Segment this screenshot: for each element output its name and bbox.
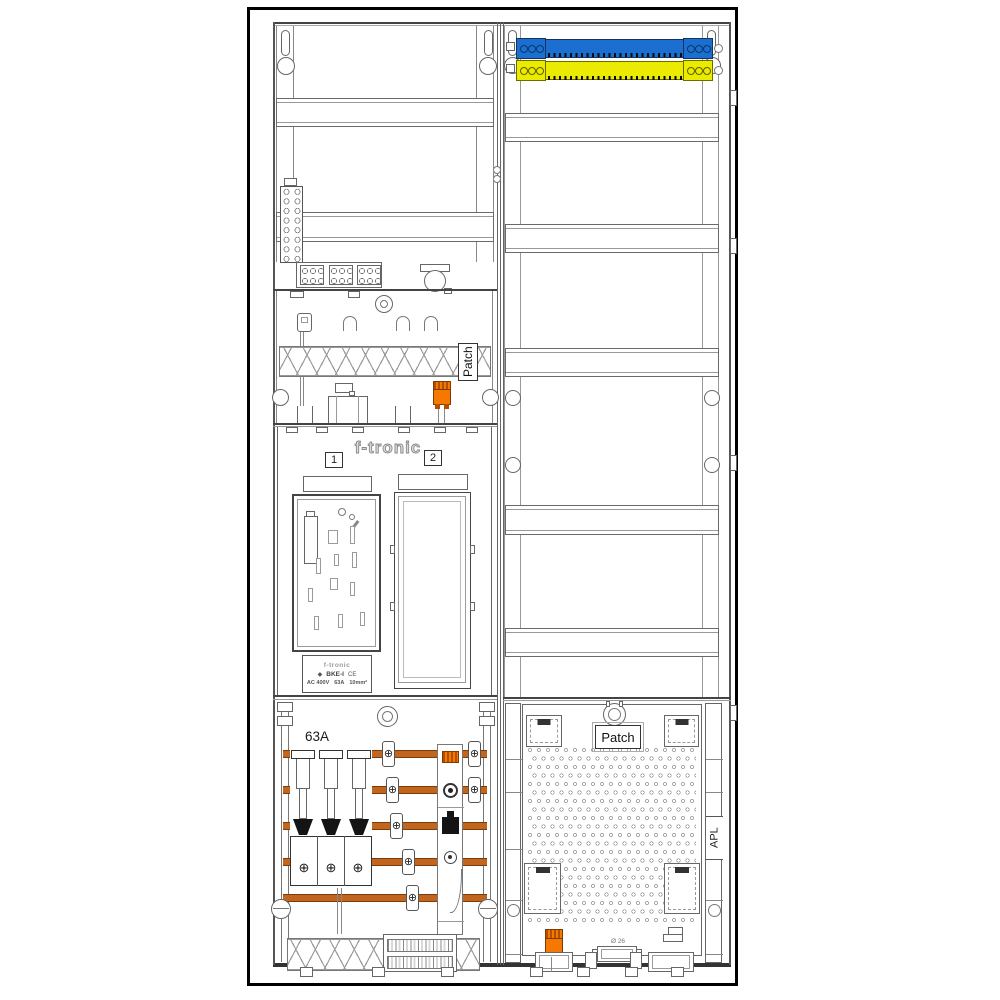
busbar-clamp-icon: ⊕ (386, 777, 399, 803)
mount-slot (330, 578, 338, 590)
profile-hole (505, 390, 521, 406)
fuse-switch-block: ⊕ ⊕ ⊕ (290, 748, 372, 888)
section-divider (503, 697, 731, 699)
pe-rail-end (516, 60, 546, 81)
pe-rail-end (683, 60, 713, 81)
busbar-clamp-icon: ⊕ (382, 741, 395, 767)
rail-segment-line (506, 792, 522, 793)
pe-terminal-rail (516, 61, 711, 80)
patch-label-right-text: Patch (601, 730, 634, 745)
fuse-contact-pad (293, 819, 313, 835)
column-divider-line-1 (497, 22, 498, 965)
screw-detail (349, 514, 355, 520)
mount-slot (350, 526, 355, 544)
field-side-tab (470, 602, 475, 611)
mount-slot (328, 530, 338, 544)
profile-hole (704, 390, 720, 406)
top-clamp-notch (606, 701, 610, 707)
connector-foot-bracket-inner (539, 955, 569, 969)
cabinet-top-edge-inner (273, 25, 731, 26)
profile-slot (281, 30, 290, 56)
screw-terminal-icon: ⊕ (324, 860, 338, 874)
section-divider (273, 423, 497, 425)
rail-segment-line (706, 792, 723, 793)
cabinet-foot (625, 967, 638, 977)
terminal-hole (536, 67, 544, 75)
junction-box-line (336, 396, 337, 425)
busbar-clamp-icon: ⊕ (468, 741, 481, 767)
side-hole (272, 389, 289, 406)
rail-pivot (507, 904, 520, 917)
connector-wire (551, 957, 552, 972)
sls-wire-arc (450, 869, 462, 913)
cutout-tab (675, 867, 689, 873)
top-grommet-inner (382, 711, 393, 722)
neutral-terminal-rail (516, 39, 711, 58)
apl-label-text: APL (706, 817, 723, 859)
profile-hole (505, 457, 521, 473)
corner-pivot (271, 899, 291, 919)
neutral-rail-ticks (548, 53, 682, 57)
divider-connector-dot (493, 166, 501, 174)
neutral-rail-end (683, 38, 713, 59)
fuse-cap (319, 750, 343, 759)
cabinet-foot (372, 967, 385, 977)
sls-device (437, 744, 463, 935)
name-plate-blank (303, 476, 372, 492)
section-divider (273, 289, 497, 291)
right-wall-hinge (730, 705, 737, 721)
terminal-hole (520, 45, 528, 53)
drawing-canvas: Patch f-tronic 1 2 (0, 0, 1000, 1000)
cabinet-top-edge (273, 22, 731, 24)
fuse-stem (296, 759, 310, 789)
rail-segment-line (706, 954, 723, 955)
terminal-hole (687, 45, 695, 53)
type-plate-current: 63A (334, 680, 344, 686)
sls-ring-screw-dot (448, 788, 453, 793)
sls-divider (438, 807, 464, 808)
top-tab (316, 427, 328, 433)
brand-logo: f-tronic (288, 438, 488, 456)
cutout-tab (675, 719, 688, 725)
rail-end-bracket (506, 64, 515, 73)
lock-element-inner (301, 317, 308, 323)
plate-cutout-square (664, 715, 699, 747)
fuse-stem-lower (327, 789, 335, 819)
knockout-bracket-inner (601, 949, 633, 959)
cabinet-foot (300, 967, 313, 977)
sls-orange-cap (442, 751, 459, 763)
top-tab (348, 291, 360, 298)
cabinet-foot (577, 967, 590, 977)
right-wall-hinge (730, 238, 737, 254)
rail-segment-line (706, 759, 723, 760)
door-knob-center (380, 300, 388, 308)
top-clamp-inner (608, 708, 621, 721)
fuse-base-divider (317, 836, 318, 886)
door-catch-hook (396, 316, 410, 331)
section-divider-inner (273, 426, 497, 427)
corner-pivot-line (273, 908, 289, 909)
knockout-diameter-label: Ø 26 (598, 937, 638, 946)
fuse-cap (291, 750, 315, 759)
name-plate-blank (398, 474, 468, 490)
section-divider-inner (503, 700, 731, 701)
fuse-contact-pad (321, 819, 341, 835)
meter-field-2-number: 2 (424, 450, 442, 466)
junction-box (328, 396, 368, 425)
screw-detail (338, 508, 346, 516)
busbar-support (281, 702, 282, 962)
cabinet-foot (671, 967, 684, 977)
screw-terminal-icon: ⊕ (351, 860, 365, 874)
neutral-rail-end (516, 38, 546, 59)
orange-connector-body (433, 389, 451, 405)
vertical-terminal-block (280, 186, 303, 263)
meter-mount-component (304, 516, 318, 564)
terminal-hole (703, 67, 711, 75)
fuse-stem-lower (299, 789, 307, 819)
mount-slot (314, 616, 319, 630)
pe-rail-ticks (548, 76, 682, 80)
din-rail (505, 505, 719, 535)
patch-label-left: Patch (458, 343, 478, 381)
busbar-support (483, 702, 484, 962)
cabinet-foot (530, 967, 543, 977)
sls-divider (438, 921, 464, 922)
terminal-hole (528, 45, 536, 53)
plate-cutout-rect (664, 863, 700, 914)
terminal-hole (703, 45, 711, 53)
profile-hole (277, 57, 295, 75)
block-wire (337, 888, 338, 934)
door-catch-hook (343, 316, 357, 331)
side-hole (482, 389, 499, 406)
field-2-number-text: 2 (430, 452, 436, 464)
din-rail (505, 628, 719, 657)
fuse-cap (347, 750, 371, 759)
support-notch (479, 716, 495, 726)
cabinet-foot (441, 967, 454, 977)
type-plate-voltage: AC 400V (307, 680, 329, 686)
meter-field-2 (394, 492, 471, 689)
type-plate-logo-icon: ◆ (318, 671, 323, 678)
step-bracket (663, 934, 683, 942)
busbar-rating-label: 63A (305, 729, 349, 745)
top-tab (290, 291, 304, 298)
cutout-tab (538, 719, 551, 725)
top-tab (434, 427, 446, 433)
door-catch-hook (424, 316, 438, 331)
corner-pivot-line (480, 908, 496, 909)
mount-slot (338, 614, 343, 628)
top-tab (398, 427, 410, 433)
right-wall-hinge (730, 90, 737, 106)
meter-field-1-number: 1 (325, 452, 343, 468)
sls-black-flag (442, 817, 459, 834)
section-wall (277, 427, 278, 697)
rail-segment-line (506, 759, 522, 760)
field-1-number-text: 1 (331, 454, 337, 466)
terminal-block-cap (284, 178, 297, 186)
fuse-base-divider (344, 836, 345, 886)
mount-slot (334, 554, 339, 566)
junction-box-line (358, 396, 359, 425)
type-plate-type: BKE-I (326, 671, 344, 678)
type-plate-brand: f-tronic (324, 662, 350, 669)
block-wire (341, 888, 342, 934)
apl-right-rail: APL (705, 703, 722, 963)
field-side-tab (390, 602, 395, 611)
rail-segment-line (506, 849, 522, 850)
meter-field-2-inner2 (403, 501, 461, 678)
busbar-clamp-icon: ⊕ (390, 813, 403, 839)
terminal-hole (536, 45, 544, 53)
terminal-group (329, 265, 353, 285)
fuse-contact-pad (349, 819, 369, 835)
terminal-hole (687, 67, 695, 75)
rail-pivot (708, 904, 721, 917)
top-tab (466, 427, 478, 433)
din-rail (276, 212, 494, 242)
rail-segment-line (706, 900, 723, 901)
profile-slot (484, 30, 493, 56)
knockout-diameter-text: Ø 26 (611, 938, 625, 945)
fuse-stem (324, 759, 338, 789)
busbar-clamp-icon: ⊕ (402, 849, 415, 875)
plate-cutout-rect (524, 863, 561, 914)
rail-segment-line (506, 900, 522, 901)
plate-cutout-square (526, 715, 562, 747)
support-notch (277, 716, 293, 726)
cabinet-left-wall (273, 22, 275, 965)
section-wall (491, 427, 492, 697)
terminal-group (357, 265, 381, 285)
terminal-row (387, 939, 453, 952)
patch-label-right: Patch (595, 725, 641, 749)
mount-slot (316, 558, 321, 574)
busbar-support (288, 702, 289, 962)
din-rail (276, 98, 494, 127)
corner-pivot (478, 899, 498, 919)
fuse-stem (352, 759, 366, 789)
field-side-tab (390, 545, 395, 554)
terminal-group (300, 265, 324, 285)
mount-slot (350, 582, 355, 596)
type-plate-cross-section: 10mm² (349, 680, 367, 686)
din-rail (505, 113, 719, 142)
fuse-stem-lower (355, 789, 363, 819)
support-notch (277, 702, 293, 712)
top-tab (352, 427, 364, 433)
din-rail (505, 224, 719, 253)
terminal-hole (520, 67, 528, 75)
profile-hole (479, 57, 497, 75)
section-divider-inner (273, 699, 497, 700)
rail-end-hole (714, 66, 723, 75)
busbar-clamp-icon: ⊕ (468, 777, 481, 803)
right-wall-hinge (730, 455, 737, 471)
screw-terminal-icon: ⊕ (297, 860, 311, 874)
support-notch (479, 702, 495, 712)
divider-connector-dot (493, 175, 501, 183)
mount-slot (360, 612, 365, 626)
profile-hole (704, 457, 720, 473)
sls-screw-dot (448, 855, 452, 859)
meter-type-plate: f-tronic ◆ BKE-I CE AC 400V 63A 10mm² (302, 655, 372, 693)
terminal-hole (695, 45, 703, 53)
terminal-hole (528, 67, 536, 75)
rail-end-hole (714, 44, 723, 53)
column-divider-line-2 (500, 22, 501, 965)
meter-field-1 (292, 494, 381, 652)
cutout-tab (536, 867, 550, 873)
mount-slot (352, 552, 357, 568)
type-plate-ce: CE (348, 672, 356, 678)
rail-end-bracket (506, 42, 515, 51)
field-side-tab (470, 545, 475, 554)
section-divider (273, 695, 497, 697)
top-clamp-notch (619, 701, 623, 707)
top-tab (286, 427, 298, 433)
busbar-clamp-icon: ⊕ (406, 885, 419, 911)
din-rail (505, 348, 719, 377)
apl-label-box: APL (706, 816, 723, 860)
mount-slot (308, 588, 313, 602)
bracket-flag-tab (349, 391, 355, 396)
rail-segment-line (506, 954, 522, 955)
cabinet-right-wall (729, 22, 731, 965)
patch-label-left-text: Patch (459, 344, 477, 380)
meter-mount-cap (306, 511, 315, 517)
apl-left-rail (505, 703, 521, 963)
terminal-hole (695, 67, 703, 75)
busbar-support (490, 702, 491, 962)
